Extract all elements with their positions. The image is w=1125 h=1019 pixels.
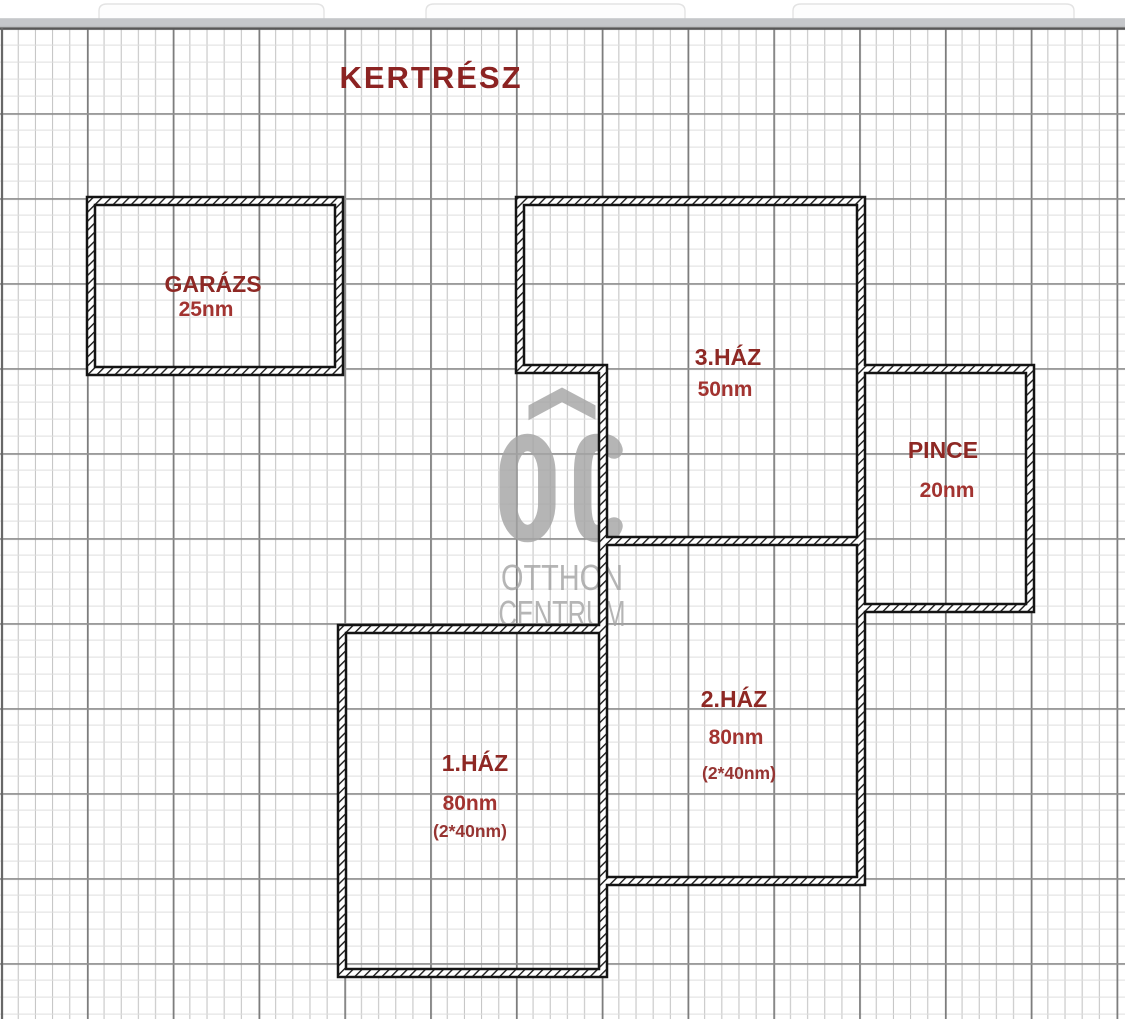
svg-text:25nm: 25nm [179,298,234,321]
svg-text:80nm: 80nm [443,792,498,815]
svg-text:KERTRÉSZ: KERTRÉSZ [339,60,522,95]
svg-text:3.HÁZ: 3.HÁZ [695,343,761,370]
svg-text:(2*40nm): (2*40nm) [702,763,776,783]
svg-text:2.HÁZ: 2.HÁZ [701,685,767,712]
svg-text:GARÁZS: GARÁZS [164,270,261,297]
svg-text:80nm: 80nm [709,726,764,749]
svg-text:(2*40nm): (2*40nm) [433,821,507,841]
svg-text:1.HÁZ: 1.HÁZ [442,749,508,776]
svg-text:20nm: 20nm [920,479,975,502]
svg-text:50nm: 50nm [698,378,753,401]
svg-text:PINCE: PINCE [908,437,978,463]
